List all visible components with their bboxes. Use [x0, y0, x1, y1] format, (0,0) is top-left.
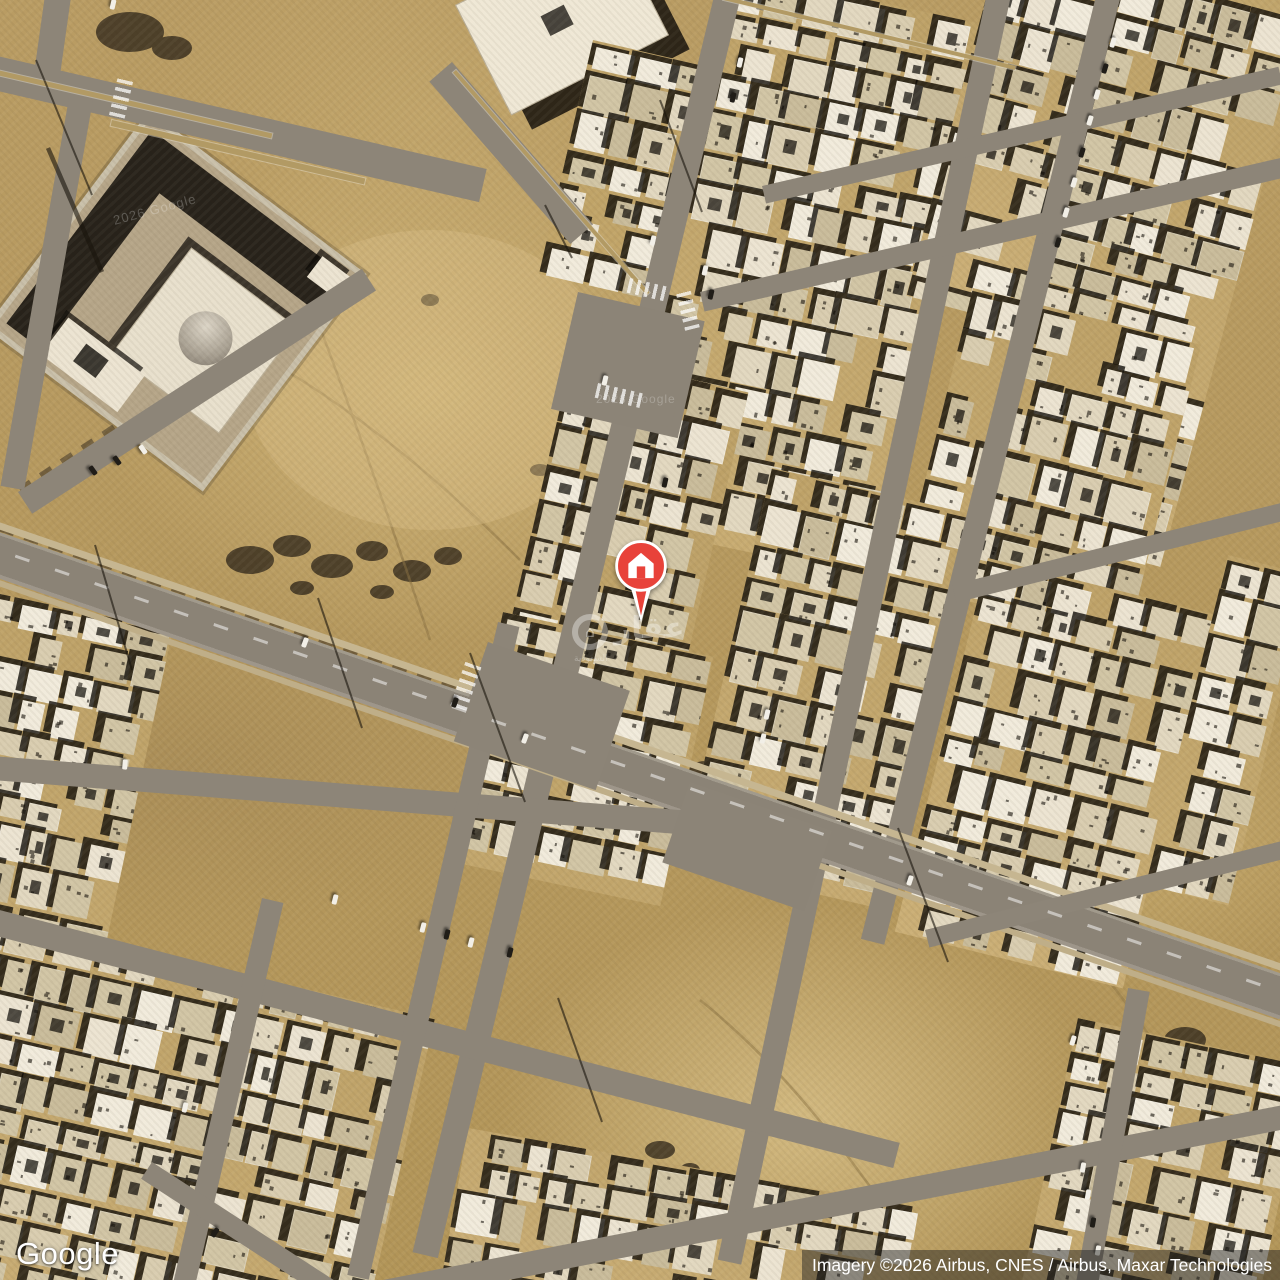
parked-car	[1080, 1162, 1087, 1173]
parked-car	[1085, 1189, 1092, 1200]
parked-car	[707, 289, 714, 300]
parked-car	[759, 733, 766, 744]
parked-car	[181, 1102, 188, 1113]
satellite-map-canvas[interactable]: ⌂ عقار السعودية 2026 Google 2026 Google …	[0, 0, 1280, 1280]
imagery-attribution: Imagery ©2026 Airbus, CNES / Airbus, Max…	[802, 1250, 1280, 1280]
parked-car	[1109, 37, 1117, 48]
parked-car	[210, 1227, 220, 1238]
parked-car	[112, 455, 122, 466]
parked-car	[1078, 147, 1086, 158]
parked-car	[506, 947, 513, 958]
parked-car	[1093, 89, 1101, 100]
parked-car	[419, 922, 426, 933]
house-door	[637, 566, 645, 578]
parked-car	[331, 894, 338, 905]
brand-subtext: السعودية	[574, 654, 608, 664]
parked-car	[451, 697, 459, 708]
parked-car	[1070, 177, 1078, 188]
parked-car	[1086, 115, 1094, 126]
parked-car	[763, 709, 770, 720]
parked-car	[701, 265, 708, 276]
parked-car	[906, 875, 914, 886]
pin-graphic	[611, 535, 671, 625]
parked-car	[736, 57, 743, 68]
parked-car	[443, 929, 450, 940]
google-logo[interactable]: Google	[16, 1236, 119, 1272]
parked-car	[661, 477, 668, 488]
parked-car	[649, 235, 656, 246]
parked-car	[88, 465, 98, 476]
parked-car	[1054, 237, 1062, 248]
parked-car	[467, 937, 474, 948]
parked-car	[729, 92, 736, 103]
parked-car	[301, 637, 309, 648]
property-location-pin[interactable]	[611, 535, 671, 630]
parked-car	[521, 733, 529, 744]
parked-car	[601, 375, 608, 386]
parked-car	[138, 444, 148, 455]
parked-car	[1069, 1035, 1077, 1046]
parked-car	[122, 759, 128, 769]
parked-car	[109, 0, 116, 10]
parked-car	[1090, 1217, 1097, 1228]
imagery-watermark: 2026 Google	[596, 392, 676, 406]
parked-car	[1101, 63, 1109, 74]
parked-car	[1062, 207, 1070, 218]
brand-house-icon: ⌂	[572, 614, 608, 650]
